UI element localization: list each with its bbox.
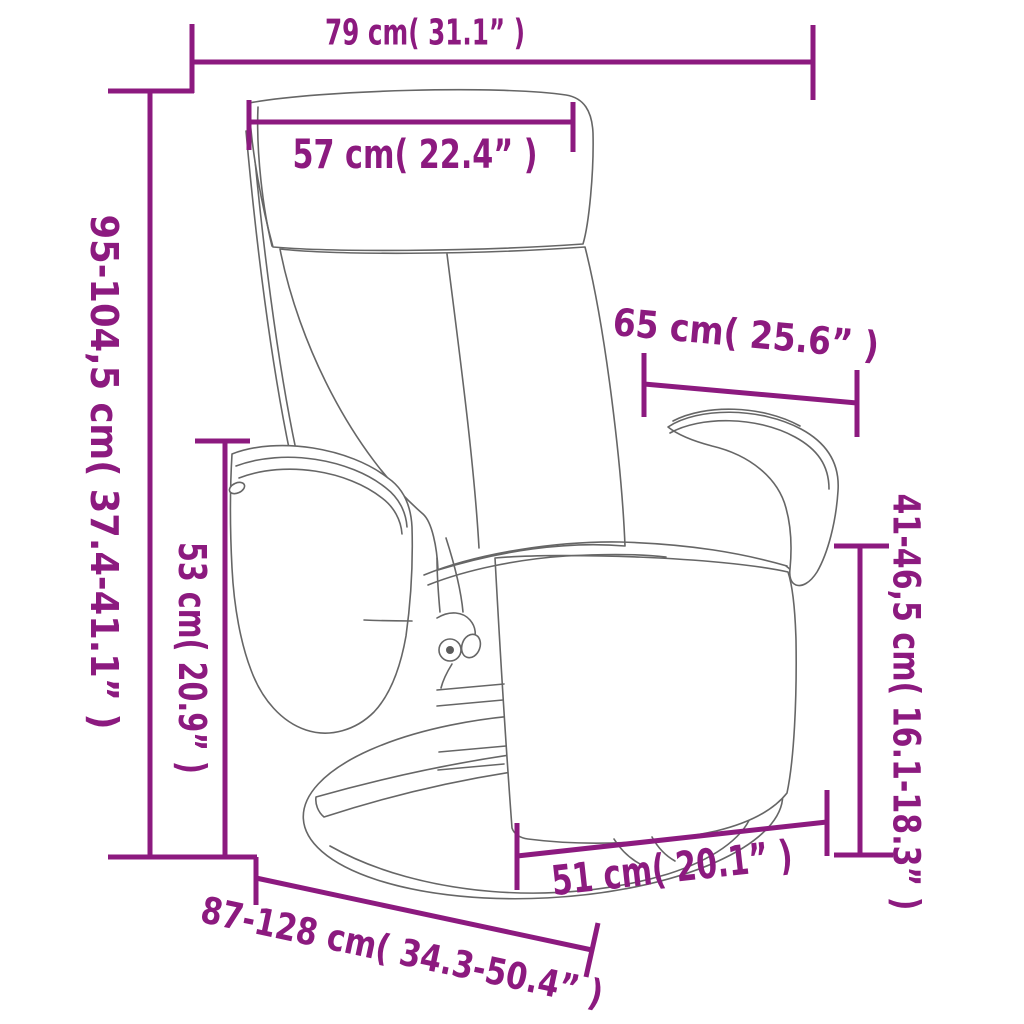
- dim-seat-height: 41-46,5 cm( 16.1-18.3” ): [834, 494, 928, 911]
- dim-backrest-depth-line: [644, 384, 857, 403]
- dim-top-width-label: 79 cm( 31.1” ): [325, 13, 525, 54]
- mechanism-rail-1: [437, 684, 504, 690]
- dim-armrest-height-label: 53 cm( 20.9” ): [170, 542, 214, 774]
- diagram-canvas: 79 cm( 31.1” ) 57 cm( 22.4” ) 95-104,5 c…: [0, 0, 1024, 1024]
- dim-top-width: 79 cm( 31.1” ): [192, 13, 813, 101]
- dim-total-height-label: 95-104,5 cm( 37.4-41.1” ): [82, 215, 126, 730]
- left-armrest: [231, 446, 413, 734]
- seat-front-panel: [495, 556, 796, 844]
- mechanism-hinge-pin: [446, 646, 454, 654]
- dim-backrest-depth-label: 65 cm( 25.6” ): [611, 300, 881, 368]
- mechanism-roller: [458, 632, 483, 661]
- dimension-diagram: 79 cm( 31.1” ) 57 cm( 22.4” ) 95-104,5 c…: [0, 0, 1024, 1024]
- dim-headrest-width-label: 57 cm( 22.4” ): [293, 132, 538, 178]
- mechanism-rail-2: [437, 700, 503, 706]
- chair-line-art: [228, 90, 839, 911]
- dim-seat-height-label: 41-46,5 cm( 16.1-18.3” ): [885, 494, 928, 911]
- mechanism-arm: [441, 664, 452, 688]
